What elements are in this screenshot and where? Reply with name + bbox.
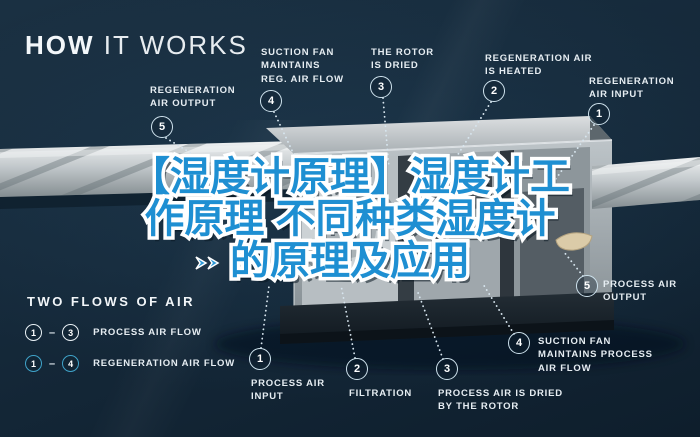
callout-label-filtration: FILTRATION — [349, 387, 412, 400]
legend-circle-1: 1 — [25, 324, 42, 341]
callout-label-suction-fan-reg: SUCTION FAN MAINTAINS REG. AIR FLOW — [261, 46, 344, 86]
callout-label-process-air-input: PROCESS AIR INPUT — [251, 377, 325, 404]
infographic-poster: 【湿度计原理】湿度计工 【湿度计原理】湿度计工 作原理 不同种类湿度计 作原理 … — [0, 0, 700, 437]
badge-5-top: 5 — [151, 116, 173, 138]
left-duct — [0, 141, 298, 209]
badge-5-bottom: 5 — [576, 275, 598, 297]
badge-2-bottom: 2 — [346, 358, 368, 380]
legend-label-regeneration: REGENERATION AIR FLOW — [93, 358, 235, 369]
badge-3-top: 3 — [370, 76, 392, 98]
heater-grill — [444, 176, 492, 210]
badge-3-bottom: 3 — [436, 358, 458, 380]
callout-label-suction-fan-process: SUCTION FAN MAINTAINS PROCESS AIR FLOW — [538, 335, 653, 375]
legend-label-process: PROCESS AIR FLOW — [93, 327, 202, 338]
legend-dash: – — [49, 327, 55, 339]
legend-row-process-air: 1 – 3 PROCESS AIR FLOW — [25, 324, 202, 341]
legend-circle-1: 1 — [25, 355, 42, 372]
right-duct — [592, 157, 700, 209]
badge-2-top: 2 — [483, 80, 505, 102]
page-title: HOW IT WORKS — [25, 30, 248, 61]
divider — [500, 150, 514, 312]
title-bold: HOW — [25, 30, 95, 60]
legend-dash: – — [49, 358, 55, 370]
arrow-icon — [194, 254, 228, 272]
legend-heading: TWO FLOWS OF AIR — [27, 294, 195, 309]
legend-circle-3: 3 — [62, 324, 79, 341]
badge-4-top: 4 — [260, 90, 282, 112]
badge-1-bottom: 1 — [249, 348, 271, 370]
callout-label-regen-air-input: REGENERATION AIR INPUT — [589, 75, 674, 102]
machine-body — [266, 116, 612, 320]
callout-label-regen-air-heated: REGENERATION AIR IS HEATED — [485, 52, 592, 79]
badge-4-bottom: 4 — [508, 332, 530, 354]
legend-circle-4: 4 — [62, 355, 79, 372]
divider — [398, 155, 414, 316]
badge-1-top: 1 — [588, 103, 610, 125]
legend-row-regeneration-air: 1 – 4 REGENERATION AIR FLOW — [25, 355, 235, 372]
callout-label-regeneration-air-output: REGENERATION AIR OUTPUT — [150, 84, 235, 111]
title-light: IT WORKS — [95, 30, 248, 60]
callout-label-process-air-output: PROCESS AIR OUTPUT — [603, 278, 677, 305]
callout-label-dried-by-rotor: PROCESS AIR IS DRIED BY THE ROTOR — [438, 387, 563, 414]
callout-label-rotor-is-dried: THE ROTOR IS DRIED — [371, 46, 434, 73]
